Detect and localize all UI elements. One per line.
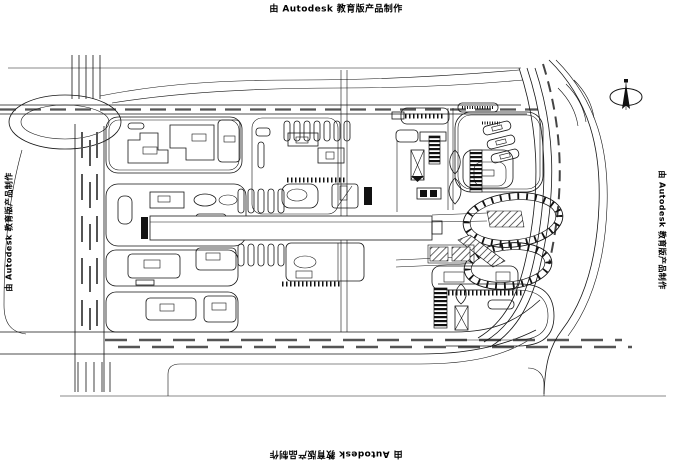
buildings-center-right: [392, 108, 482, 204]
buildings-bottom-left: [128, 248, 236, 322]
north-arrow-icon: [610, 79, 642, 110]
plot-sheet: 由 Autodesk 教育版产品制作 由 Autodesk 教育版产品制作 由 …: [0, 0, 673, 466]
canopy-bar-rows: [238, 121, 350, 266]
site-plan-drawing: [0, 0, 673, 466]
central-slab-building: [141, 216, 442, 240]
loop-ramps: [458, 188, 566, 294]
buildings-top-left: [128, 120, 240, 163]
buildings-center-top: [256, 128, 372, 208]
